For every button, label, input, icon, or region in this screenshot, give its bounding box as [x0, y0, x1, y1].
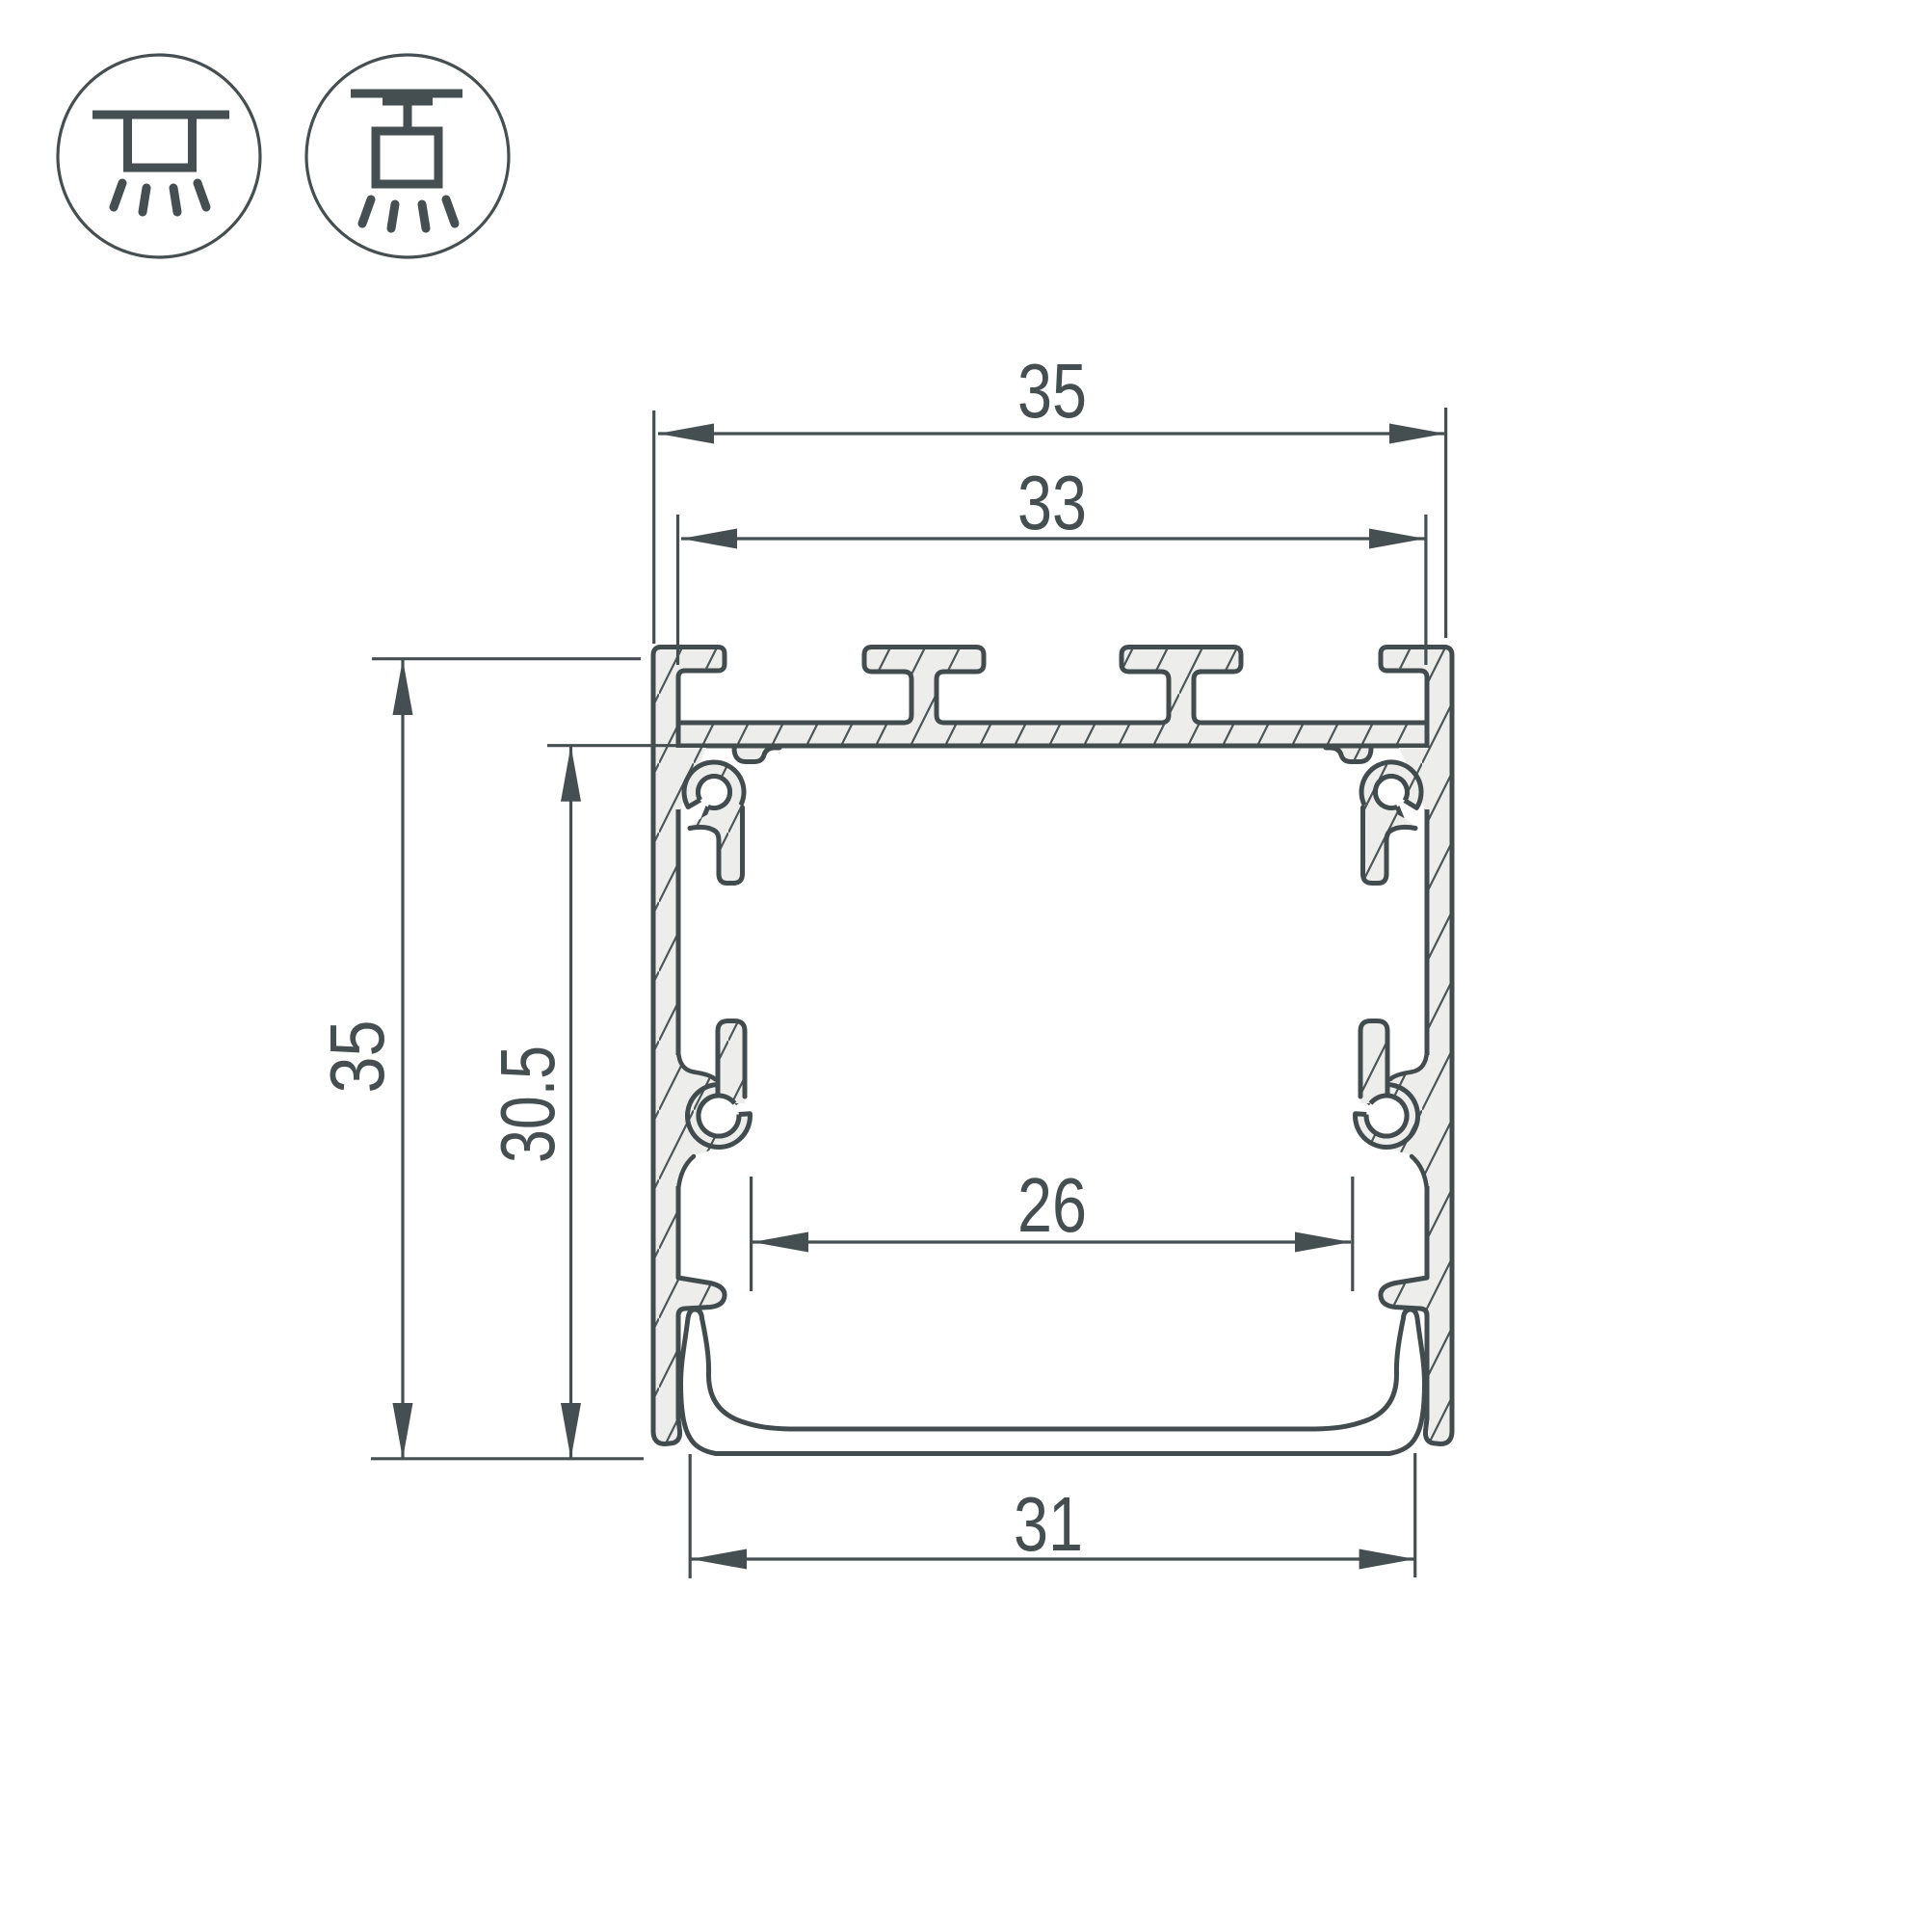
svg-text:33: 33 — [1017, 460, 1087, 545]
svg-text:35: 35 — [1017, 348, 1087, 434]
svg-text:35: 35 — [314, 1020, 400, 1094]
svg-text:31: 31 — [1014, 1481, 1083, 1567]
svg-text:30.5: 30.5 — [485, 1045, 570, 1163]
svg-text:26: 26 — [1017, 1162, 1087, 1248]
